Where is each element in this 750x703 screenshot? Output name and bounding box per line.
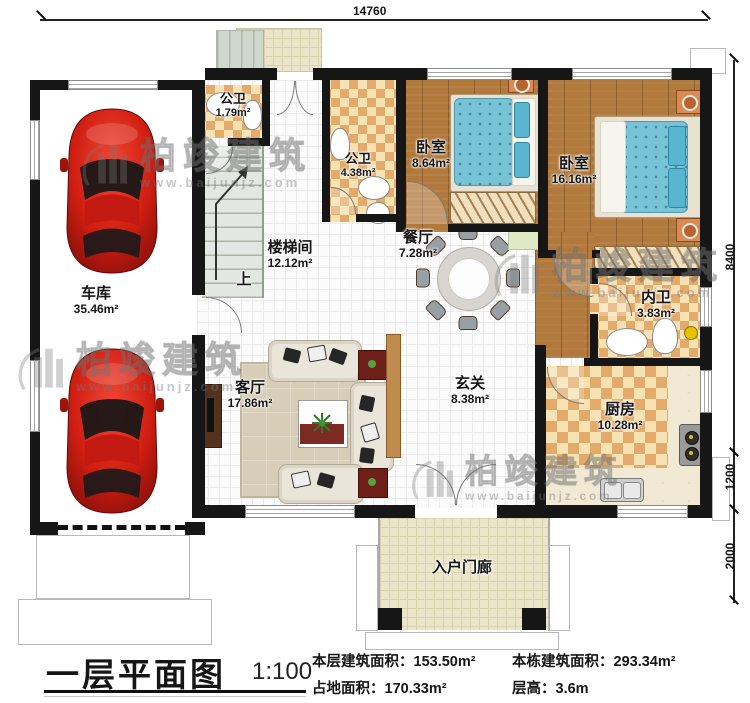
end-table-plant (368, 360, 376, 368)
wall-segment (590, 268, 706, 276)
dining-chair (416, 269, 430, 288)
window (427, 68, 512, 80)
wall-segment (30, 180, 40, 360)
room-label-bedroom1: 卧室8.64m² (396, 140, 466, 170)
title-underline-thin (44, 696, 306, 697)
wall-segment (538, 250, 556, 258)
dim-line-top (40, 19, 708, 21)
end-table-plant (368, 478, 376, 486)
wall-segment (700, 68, 712, 287)
window (617, 505, 688, 518)
dining-chair (506, 269, 520, 288)
room-label-stairwell: 楼梯间12.12m² (248, 240, 332, 270)
wall-segment (322, 80, 330, 222)
driveway-outline (18, 599, 212, 645)
wardrobe (594, 246, 704, 270)
sofa-cushion (359, 447, 375, 464)
wall-segment (192, 335, 205, 505)
wall-segment (30, 432, 40, 535)
car (60, 346, 164, 516)
wall-segment (592, 250, 600, 258)
wardrobe (450, 192, 536, 224)
nightstand (676, 218, 702, 242)
nightstand (676, 90, 702, 114)
wall-segment (590, 314, 598, 358)
stat-floor-area: 本层建筑面积：153.50m² (312, 650, 476, 671)
wall-segment (546, 505, 617, 518)
window (572, 68, 672, 80)
wall-segment (535, 345, 546, 505)
bed-pillow (514, 102, 530, 138)
floor-plan-sheet: 柏竣建筑 www.baijunjz.com 柏竣建筑 www.baijunjz.… (0, 0, 750, 703)
porch-step-outline (365, 632, 559, 650)
wall-segment (322, 214, 330, 222)
window (700, 370, 712, 413)
driveway-outline (36, 535, 190, 599)
wall-segment (700, 413, 712, 518)
sheet-scale: 1:100 (252, 658, 312, 686)
stairs-up-label: 上 (230, 272, 258, 289)
dim-label-1200: 1200 (723, 449, 737, 505)
dining-table-top (448, 258, 490, 300)
wall-segment (30, 522, 58, 535)
wall-segment (185, 522, 205, 535)
sink (358, 176, 390, 200)
sink (606, 328, 648, 356)
toilet (652, 318, 678, 354)
wall-segment (228, 138, 270, 146)
garage-door-dashed (58, 525, 185, 530)
wall-segment (497, 505, 546, 518)
window (68, 80, 158, 90)
stat-total-area: 本栋建筑面积：293.34m² (512, 650, 676, 671)
sofa-cushion (307, 345, 327, 363)
room-label-porch: 入户门廊 (406, 560, 518, 577)
wall-segment (688, 505, 712, 518)
wall-segment (355, 505, 415, 518)
wall-segment (584, 358, 706, 366)
stat-floor-height: 层高：3.6m (512, 677, 589, 698)
back-steps (216, 30, 264, 72)
dim-label-2000: 2000 (723, 528, 737, 584)
porch-pillar (378, 608, 402, 630)
room-label-foyer: 玄关8.38m² (430, 376, 510, 406)
dim-line-right (733, 60, 735, 603)
foyer-console (386, 334, 401, 458)
room-label-bedroom2: 卧室16.16m² (538, 156, 610, 186)
dim-label-width: 14760 (350, 4, 389, 18)
room-label-ensuite: 内卫3.83m² (616, 290, 696, 320)
room-label-dining: 餐厅7.28m² (380, 230, 456, 260)
title-underline (44, 690, 306, 693)
window (30, 360, 40, 432)
plant (310, 411, 334, 435)
wall-segment (192, 505, 245, 518)
dim-label-8400: 8400 (723, 229, 737, 285)
room-label-kitchen: 厨房10.28m² (578, 402, 662, 432)
window (30, 120, 40, 180)
porch-step-outline (548, 545, 570, 631)
car (60, 106, 164, 276)
porch-pillar (522, 608, 546, 630)
window (245, 505, 355, 518)
stat-footprint-area: 占地面积：170.33m² (312, 677, 447, 698)
porch-step-outline (356, 545, 378, 631)
wall-segment (205, 68, 277, 80)
kitchen-sink (600, 478, 644, 502)
wall-segment (30, 80, 40, 120)
wall-segment (313, 68, 427, 80)
bed-pillow (668, 126, 686, 166)
room-label-garage: 车库35.46m² (44, 286, 148, 316)
room-label-bath-small: 公卫1.79m² (198, 92, 268, 119)
dining-chair (459, 316, 478, 330)
room-label-bath-hall: 公卫4.38m² (322, 152, 394, 179)
bed-pillow (668, 168, 686, 208)
wall-segment (448, 224, 538, 232)
room-label-living: 客厅17.86m² (210, 380, 290, 410)
shower-fixture (684, 326, 698, 340)
sheet-title: 一层平面图 (46, 648, 226, 696)
window (700, 287, 712, 327)
bed-pillow (514, 142, 530, 178)
